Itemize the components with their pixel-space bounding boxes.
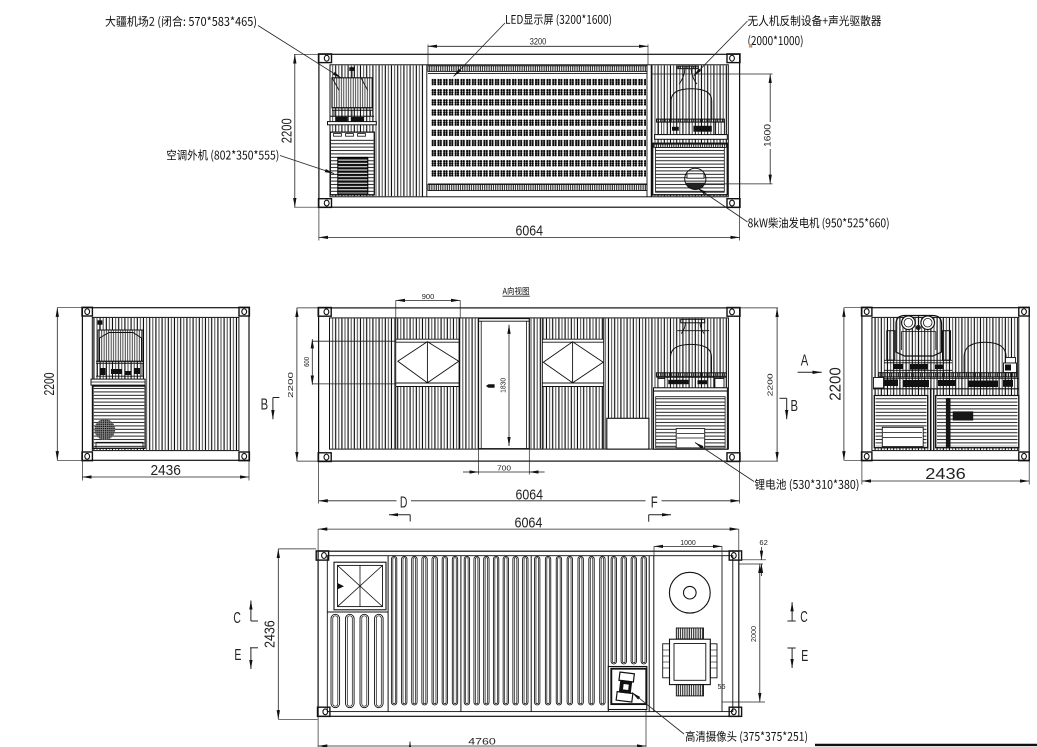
- svg-text:E: E: [801, 648, 808, 665]
- svg-text:2200: 2200: [827, 367, 844, 401]
- svg-text:2436: 2436: [263, 620, 279, 648]
- svg-text:1000: 1000: [680, 538, 696, 547]
- svg-text:6064: 6064: [516, 486, 544, 503]
- svg-text:62: 62: [759, 538, 768, 547]
- svg-text:C: C: [233, 610, 241, 627]
- svg-text:C: C: [800, 609, 808, 626]
- svg-text:F: F: [651, 494, 658, 511]
- svg-text:2200: 2200: [766, 373, 775, 396]
- svg-text:700: 700: [497, 465, 511, 472]
- svg-text:6064: 6064: [516, 223, 544, 240]
- svg-text:3200: 3200: [530, 37, 547, 47]
- svg-text:2200: 2200: [41, 373, 58, 396]
- svg-text:900: 900: [422, 292, 435, 301]
- svg-text:56: 56: [718, 682, 726, 691]
- svg-text:600: 600: [304, 357, 311, 367]
- svg-text:A: A: [801, 353, 809, 370]
- svg-text:6064: 6064: [514, 514, 542, 531]
- svg-text:E: E: [234, 647, 241, 664]
- svg-text:2200: 2200: [286, 372, 295, 398]
- svg-text:B: B: [791, 398, 799, 415]
- svg-text:2436: 2436: [150, 462, 181, 479]
- svg-text:2200: 2200: [279, 118, 295, 143]
- svg-text:D: D: [400, 494, 408, 511]
- svg-text:1600: 1600: [763, 124, 773, 147]
- svg-text:2000: 2000: [749, 626, 758, 642]
- svg-text:4760: 4760: [468, 736, 496, 747]
- svg-text:1830: 1830: [501, 378, 508, 393]
- svg-text:2436: 2436: [925, 466, 966, 483]
- svg-text:B: B: [261, 397, 269, 414]
